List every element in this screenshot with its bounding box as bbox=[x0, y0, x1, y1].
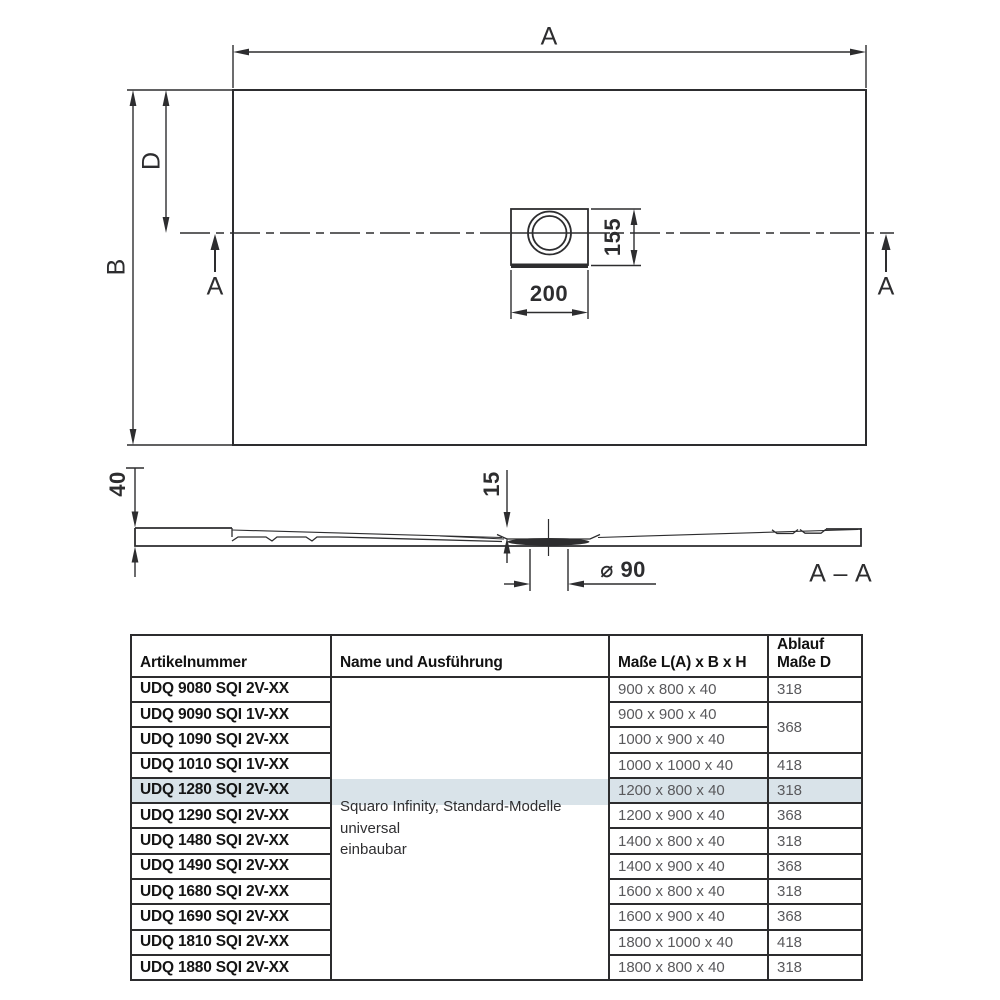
masse-value: 1400 x 900 x 40 bbox=[609, 854, 768, 879]
section-cut-left-label: A bbox=[207, 273, 224, 302]
ablauf-value: 318 bbox=[768, 677, 862, 702]
article-number: UDQ 9090 SQI 1V-XX bbox=[131, 702, 331, 727]
article-number: UDQ 9080 SQI 2V-XX bbox=[131, 677, 331, 702]
datasheet-page: A B D A A 155 200 40 15 ⌀ 90 A – A Artik… bbox=[0, 0, 1000, 1000]
section-cut-arrow-left bbox=[211, 234, 220, 272]
article-number: UDQ 1680 SQI 2V-XX bbox=[131, 879, 331, 904]
dimension-b bbox=[127, 90, 233, 445]
col-header-ablauf-line1: Ablauf bbox=[777, 636, 855, 654]
name-line-1: Squaro Infinity, Standard-Modelle univer… bbox=[340, 796, 602, 840]
article-number: UDQ 1880 SQI 2V-XX bbox=[131, 955, 331, 980]
top-view bbox=[127, 45, 894, 445]
ablauf-value: 418 bbox=[768, 753, 862, 778]
section-title-label: A – A bbox=[809, 560, 872, 589]
section-cut-arrow-right bbox=[882, 234, 891, 272]
masse-value: 1000 x 900 x 40 bbox=[609, 727, 768, 752]
masse-value: 1400 x 800 x 40 bbox=[609, 828, 768, 853]
masse-value: 900 x 800 x 40 bbox=[609, 677, 768, 702]
article-number: UDQ 1480 SQI 2V-XX bbox=[131, 828, 331, 853]
article-number: UDQ 1280 SQI 2V-XX bbox=[131, 778, 331, 803]
table-header-row: Artikelnummer Name und Ausführung Maße L… bbox=[131, 635, 862, 677]
col-header-ablauf-line2: Maße D bbox=[777, 654, 855, 672]
article-number: UDQ 1090 SQI 2V-XX bbox=[131, 727, 331, 752]
drain-unit-top-view bbox=[511, 209, 588, 268]
dim-diameter-90-label: ⌀ 90 bbox=[600, 557, 646, 583]
variant-table: Artikelnummer Name und Ausführung Maße L… bbox=[130, 634, 863, 981]
ablauf-value: 318 bbox=[768, 879, 862, 904]
col-header-masse: Maße L(A) x B x H bbox=[609, 635, 768, 677]
variant-table-wrapper: Artikelnummer Name und Ausführung Maße L… bbox=[130, 634, 863, 981]
article-number: UDQ 1490 SQI 2V-XX bbox=[131, 854, 331, 879]
ablauf-value: 318 bbox=[768, 828, 862, 853]
col-header-artikelnummer: Artikelnummer bbox=[131, 635, 331, 677]
col-header-name: Name und Ausführung bbox=[331, 635, 609, 677]
masse-value: 1000 x 1000 x 40 bbox=[609, 753, 768, 778]
ablauf-value: 418 bbox=[768, 930, 862, 955]
article-number: UDQ 1810 SQI 2V-XX bbox=[131, 930, 331, 955]
ablauf-value: 318 bbox=[768, 955, 862, 980]
masse-value: 1600 x 900 x 40 bbox=[609, 904, 768, 929]
section-cut-right-label: A bbox=[878, 273, 895, 302]
name-und-ausfuehrung-cell: Squaro Infinity, Standard-Modelle univer… bbox=[331, 677, 609, 981]
ablauf-value: 368 bbox=[768, 803, 862, 828]
ablauf-value: 318 bbox=[768, 778, 862, 803]
masse-value: 1800 x 800 x 40 bbox=[609, 955, 768, 980]
article-number: UDQ 1010 SQI 1V-XX bbox=[131, 753, 331, 778]
masse-value: 1800 x 1000 x 40 bbox=[609, 930, 768, 955]
ablauf-value: 368 bbox=[768, 904, 862, 929]
ablauf-value: 368 bbox=[768, 702, 862, 753]
technical-drawing-canvas bbox=[0, 0, 1000, 625]
dim-a-label: A bbox=[541, 23, 558, 52]
name-line-2: einbaubar bbox=[340, 839, 602, 861]
dim-d-label: D bbox=[138, 152, 167, 170]
dim-200-label: 200 bbox=[530, 281, 568, 307]
masse-value: 900 x 900 x 40 bbox=[609, 702, 768, 727]
masse-value: 1200 x 800 x 40 bbox=[609, 778, 768, 803]
ablauf-value: 368 bbox=[768, 854, 862, 879]
masse-value: 1200 x 900 x 40 bbox=[609, 803, 768, 828]
dim-40-label: 40 bbox=[105, 471, 131, 496]
masse-value: 1600 x 800 x 40 bbox=[609, 879, 768, 904]
dim-15-label: 15 bbox=[479, 471, 505, 496]
article-number: UDQ 1290 SQI 2V-XX bbox=[131, 803, 331, 828]
dim-155-label: 155 bbox=[600, 218, 626, 256]
table-row[interactable]: UDQ 9080 SQI 2V-XX Squaro Infinity, Stan… bbox=[131, 677, 862, 702]
col-header-ablauf: Ablauf Maße D bbox=[768, 635, 862, 677]
dim-b-label: B bbox=[103, 259, 132, 276]
article-number: UDQ 1690 SQI 2V-XX bbox=[131, 904, 331, 929]
